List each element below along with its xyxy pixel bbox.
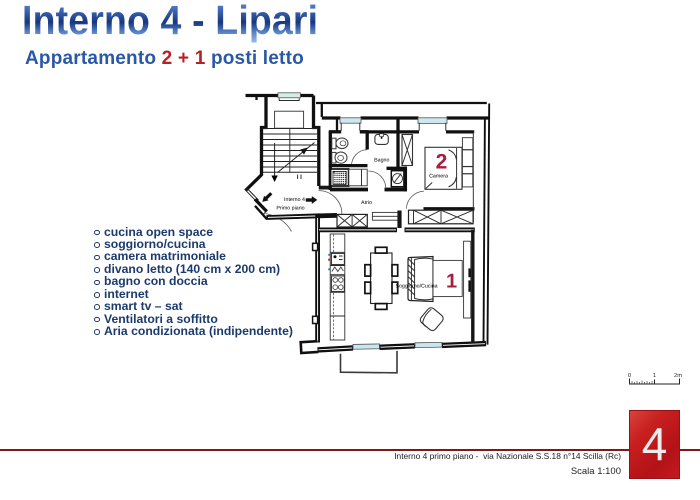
- svg-text:Interno 4: Interno 4: [284, 197, 305, 203]
- svg-text:Bagno: Bagno: [374, 157, 389, 163]
- svg-text:Atrio: Atrio: [361, 200, 372, 206]
- svg-text:Primo piano: Primo piano: [276, 206, 304, 212]
- svg-text:Camera: Camera: [429, 173, 448, 179]
- svg-text:1: 1: [653, 373, 656, 379]
- svg-text:Soggiorno/Cucina: Soggiorno/Cucina: [395, 283, 437, 289]
- svg-text:2m: 2m: [674, 372, 682, 379]
- svg-text:0: 0: [628, 372, 631, 379]
- svg-text:2: 2: [436, 151, 448, 174]
- svg-text:1: 1: [446, 271, 457, 293]
